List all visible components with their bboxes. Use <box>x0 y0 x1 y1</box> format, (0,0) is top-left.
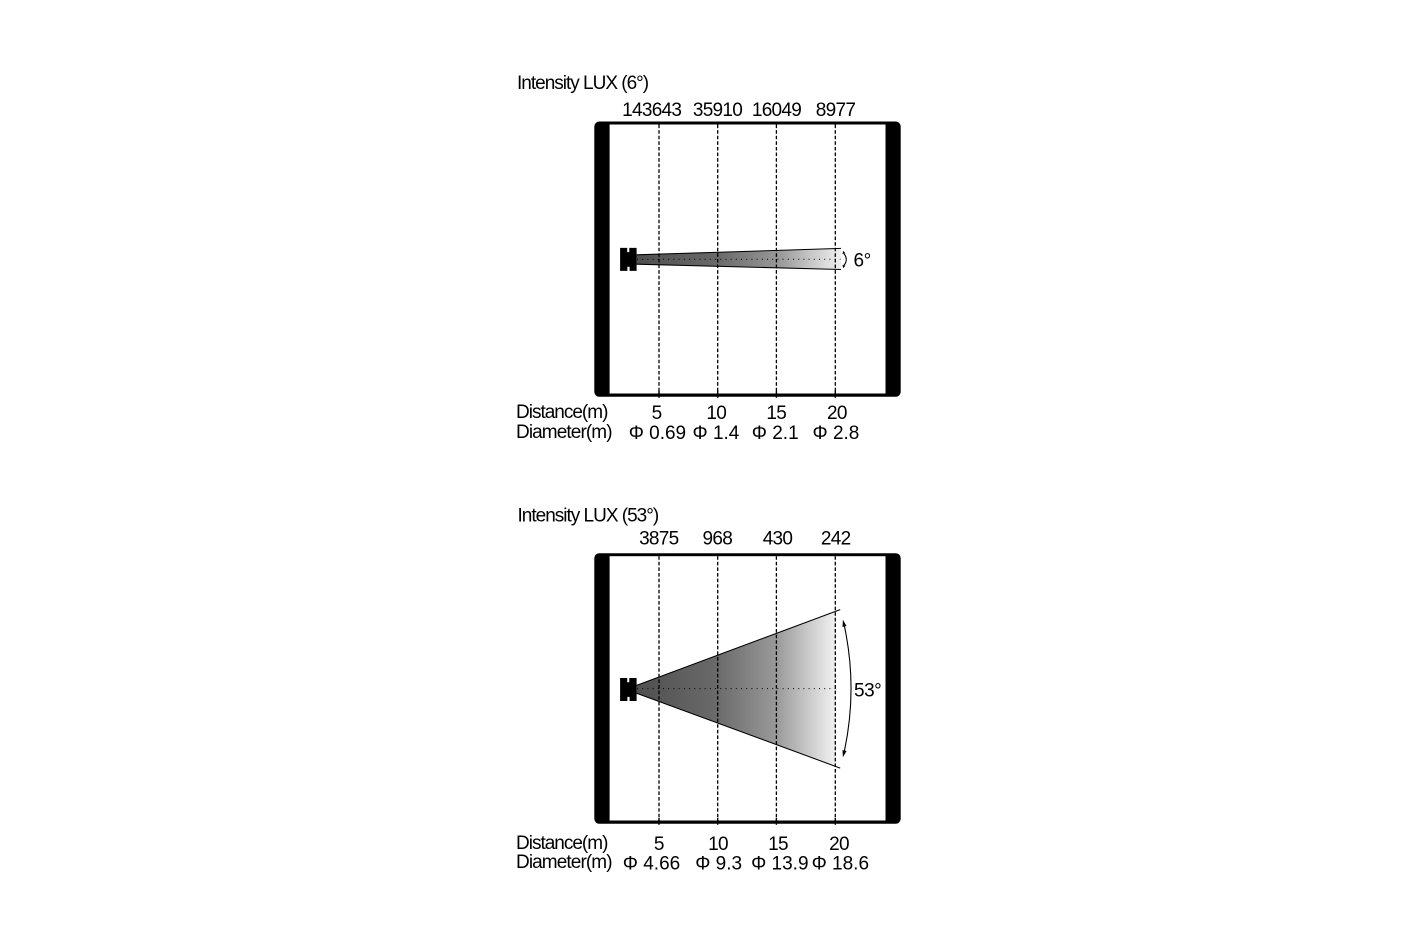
svg-text:242: 242 <box>821 529 851 550</box>
svg-text:Intensity LUX (6°): Intensity LUX (6°) <box>517 73 649 94</box>
svg-text:Φ 18.6: Φ 18.6 <box>812 853 869 874</box>
svg-text:Diameter(m): Diameter(m) <box>516 852 612 873</box>
svg-text:15: 15 <box>766 403 786 424</box>
svg-text:143643: 143643 <box>622 100 681 121</box>
svg-text:5: 5 <box>652 403 662 424</box>
svg-text:Φ 0.69: Φ 0.69 <box>629 423 686 444</box>
svg-text:Φ 2.8: Φ 2.8 <box>813 423 860 444</box>
svg-text:20: 20 <box>829 834 849 855</box>
svg-text:10: 10 <box>708 834 728 855</box>
svg-text:Φ 4.66: Φ 4.66 <box>623 853 680 874</box>
svg-text:35910: 35910 <box>693 100 742 121</box>
svg-text:968: 968 <box>702 529 732 550</box>
svg-text:Φ 13.9: Φ 13.9 <box>751 853 808 874</box>
svg-text:10: 10 <box>706 403 726 424</box>
svg-text:6°: 6° <box>854 251 871 272</box>
svg-text:430: 430 <box>763 529 793 550</box>
svg-text:8977: 8977 <box>816 100 856 121</box>
svg-text:Distance(m): Distance(m) <box>516 833 608 854</box>
svg-text:16049: 16049 <box>752 100 801 121</box>
svg-text:53°: 53° <box>854 681 881 702</box>
svg-text:20: 20 <box>827 403 847 424</box>
svg-text:3875: 3875 <box>639 529 679 550</box>
svg-text:Distance(m): Distance(m) <box>516 402 608 423</box>
svg-text:Diameter(m): Diameter(m) <box>516 422 612 443</box>
svg-text:5: 5 <box>654 834 664 855</box>
svg-text:Φ 9.3: Φ 9.3 <box>695 853 742 874</box>
svg-text:Intensity LUX (53°): Intensity LUX (53°) <box>518 506 659 527</box>
svg-text:15: 15 <box>768 834 788 855</box>
svg-text:Φ 2.1: Φ 2.1 <box>752 423 799 444</box>
svg-text:Φ 1.4: Φ 1.4 <box>693 423 740 444</box>
